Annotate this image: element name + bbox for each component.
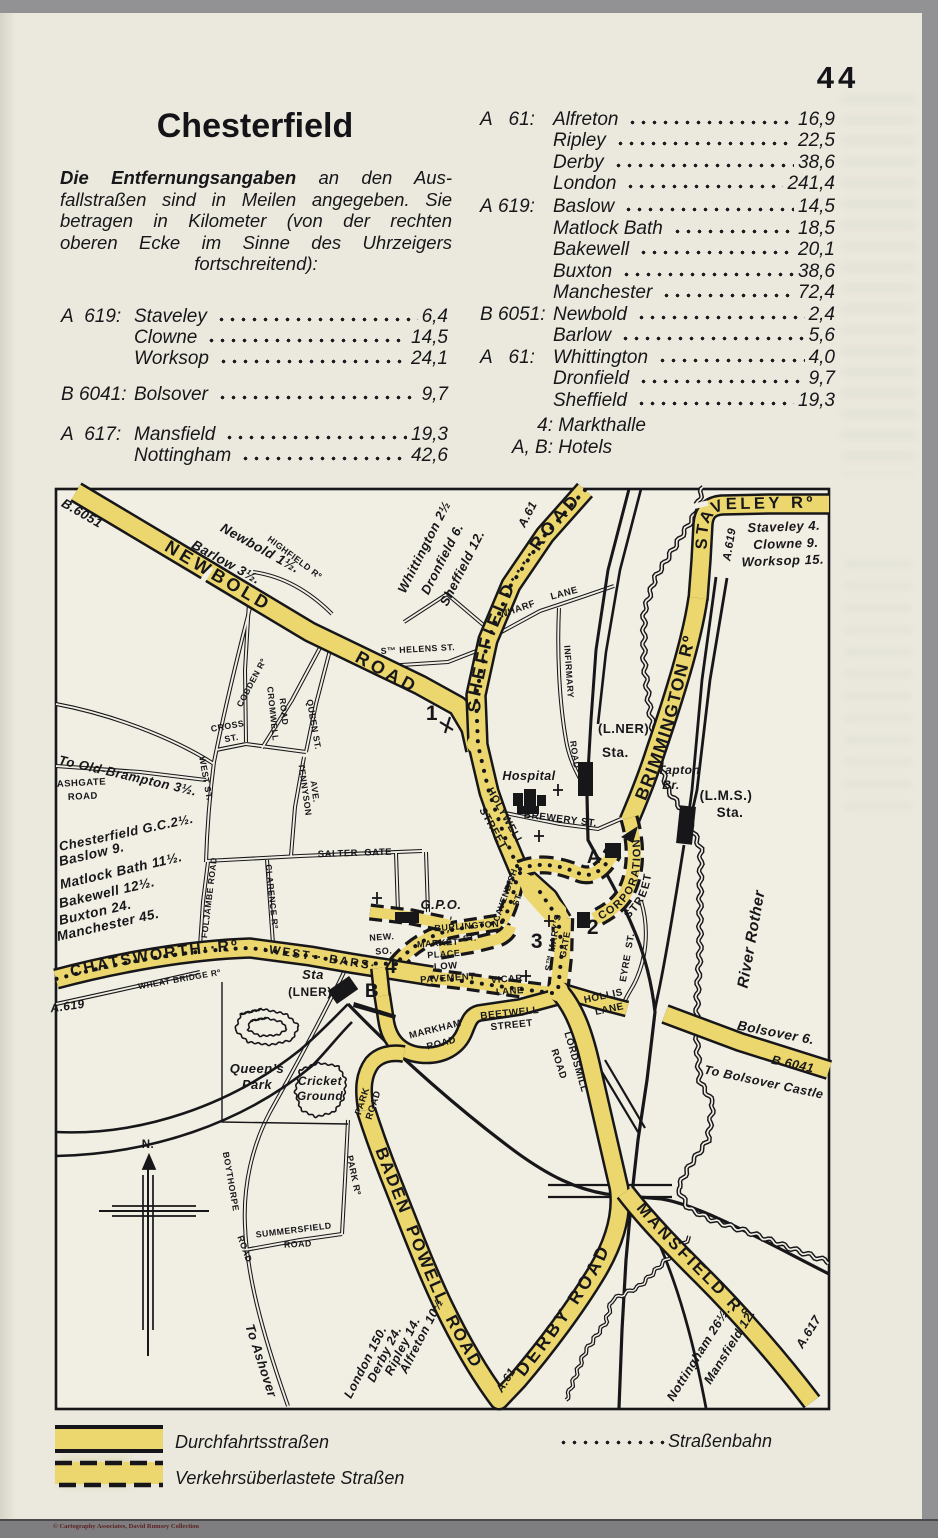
svg-text:Worksop 15.: Worksop 15. xyxy=(741,552,824,570)
svg-text:LANE: LANE xyxy=(496,985,525,998)
svg-text:4: 4 xyxy=(385,955,397,978)
svg-text:N.: N. xyxy=(142,1139,155,1151)
svg-text:VICAR: VICAR xyxy=(490,973,523,986)
svg-text:Hospital: Hospital xyxy=(502,769,555,783)
svg-text:Sta.: Sta. xyxy=(602,745,629,760)
svg-text:Staveley 4.: Staveley 4. xyxy=(747,518,820,536)
svg-text:ROAD: ROAD xyxy=(68,790,99,803)
svg-text:Tapton: Tapton xyxy=(658,763,701,777)
svg-text:(L.NER): (L.NER) xyxy=(598,721,649,736)
svg-text:Park: Park xyxy=(242,1077,272,1092)
svg-text:1: 1 xyxy=(426,702,438,725)
svg-text:Ground: Ground xyxy=(297,1089,343,1103)
svg-text:B: B xyxy=(365,981,379,1002)
svg-text:Cricket: Cricket xyxy=(298,1074,343,1088)
svg-text:(LNER): (LNER) xyxy=(288,985,332,999)
svg-text:Sta.: Sta. xyxy=(717,805,744,820)
svg-text:Sta: Sta xyxy=(302,967,324,982)
svg-text:(L.M.S.): (L.M.S.) xyxy=(700,788,753,803)
svg-text:Br.: Br. xyxy=(662,778,680,792)
svg-text:G.P.O.: G.P.O. xyxy=(420,897,461,912)
svg-text:ROAD: ROAD xyxy=(284,1238,312,1249)
svg-text:Queen’s: Queen’s xyxy=(230,1061,285,1076)
svg-text:3: 3 xyxy=(531,930,543,953)
svg-text:NEW.: NEW. xyxy=(369,931,395,943)
svg-text:LOW: LOW xyxy=(434,960,458,973)
svg-text:Clowne 9.: Clowne 9. xyxy=(753,535,819,552)
svg-text:ST.: ST. xyxy=(463,933,477,944)
svg-text:A: A xyxy=(587,847,601,868)
